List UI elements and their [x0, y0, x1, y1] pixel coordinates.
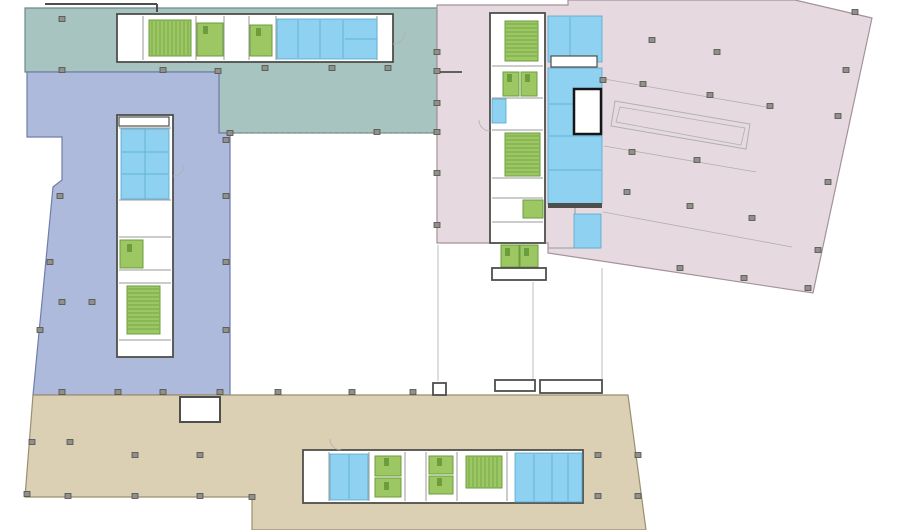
- column: [275, 390, 281, 395]
- column: [160, 390, 166, 395]
- column: [385, 66, 391, 71]
- column: [59, 68, 65, 73]
- stair-room: [466, 456, 502, 488]
- column: [434, 171, 440, 176]
- column: [852, 10, 858, 15]
- stair-opening: [180, 397, 220, 422]
- floor-plan-page: [0, 0, 900, 530]
- wc-room: [492, 99, 506, 123]
- column: [223, 260, 229, 265]
- pod-fixture: [524, 248, 529, 256]
- column: [223, 138, 229, 143]
- column: [59, 390, 65, 395]
- entrance-canopy: [495, 380, 535, 391]
- column: [595, 453, 601, 458]
- pod-fixture: [203, 26, 208, 34]
- column: [215, 69, 221, 74]
- column: [600, 78, 606, 83]
- pod-fixture: [256, 28, 261, 36]
- column: [707, 93, 713, 98]
- column: [434, 223, 440, 228]
- column: [132, 453, 138, 458]
- column: [67, 440, 73, 445]
- column: [410, 390, 416, 395]
- column: [714, 50, 720, 55]
- column: [374, 130, 380, 135]
- column: [59, 300, 65, 305]
- column: [635, 453, 641, 458]
- stair-room: [505, 133, 540, 176]
- column: [749, 216, 755, 221]
- floor-plan: [0, 0, 900, 530]
- column: [227, 131, 233, 136]
- stair-room: [505, 21, 538, 61]
- column: [249, 495, 255, 500]
- wc-room: [548, 16, 602, 62]
- pod-room: [197, 23, 223, 56]
- column: [629, 150, 635, 155]
- column: [223, 328, 229, 333]
- entrance-canopy: [433, 383, 446, 395]
- column: [24, 492, 30, 497]
- column: [434, 101, 440, 106]
- wc-room: [515, 453, 582, 502]
- column: [57, 194, 63, 199]
- column: [47, 260, 53, 265]
- service-room: [551, 56, 597, 67]
- column: [805, 286, 811, 291]
- column: [115, 390, 121, 395]
- column: [349, 390, 355, 395]
- column: [595, 494, 601, 499]
- column: [434, 130, 440, 135]
- entrance-canopy: [492, 268, 546, 280]
- west-core-cap: [119, 117, 169, 126]
- pod-fixture: [384, 482, 389, 490]
- stair-room: [149, 20, 191, 56]
- column: [843, 68, 849, 73]
- column: [649, 38, 655, 43]
- column: [197, 494, 203, 499]
- column: [434, 69, 440, 74]
- column: [835, 114, 841, 119]
- column: [29, 440, 35, 445]
- column: [132, 494, 138, 499]
- column: [741, 276, 747, 281]
- column: [635, 494, 641, 499]
- wc-room: [574, 214, 601, 248]
- column: [434, 50, 440, 55]
- elevator: [574, 89, 601, 134]
- column: [89, 300, 95, 305]
- column: [815, 248, 821, 253]
- pod-fixture: [525, 74, 530, 82]
- column: [624, 190, 630, 195]
- column: [59, 17, 65, 22]
- column: [329, 66, 335, 71]
- column: [223, 194, 229, 199]
- pod-fixture: [437, 478, 442, 486]
- pod-fixture: [384, 458, 389, 466]
- column: [160, 68, 166, 73]
- column: [767, 104, 773, 109]
- pod-fixture: [437, 458, 442, 466]
- wall: [548, 203, 602, 208]
- column: [694, 158, 700, 163]
- pod-fixture: [127, 244, 132, 252]
- column: [825, 180, 831, 185]
- column: [197, 453, 203, 458]
- column: [262, 66, 268, 71]
- column: [677, 266, 683, 271]
- column: [217, 390, 223, 395]
- entrance-canopy: [540, 380, 602, 393]
- pod-fixture: [507, 74, 512, 82]
- column: [687, 204, 693, 209]
- column: [65, 494, 71, 499]
- pod-room: [523, 200, 543, 218]
- column: [37, 328, 43, 333]
- pod-fixture: [505, 248, 510, 256]
- column: [640, 82, 646, 87]
